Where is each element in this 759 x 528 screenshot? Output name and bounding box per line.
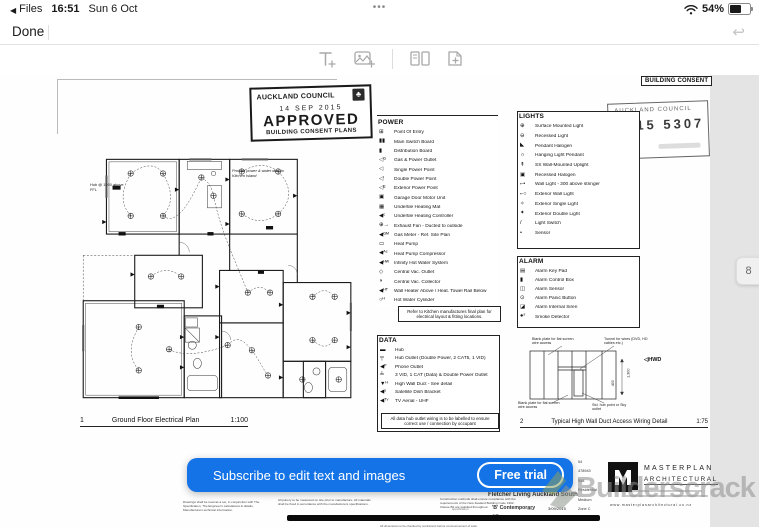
legend-item: ╤Hub Outlet (Double Power, 2 CAT5, 1 VID…: [378, 355, 499, 364]
address-line: [632, 490, 702, 492]
legend-item: ⊕→Exhaust Fan - Ducted to outside: [377, 221, 498, 230]
detail-scale: 1:75: [696, 419, 708, 425]
detail-title: Typical High Wall Duct Access Wiring Det…: [551, 419, 688, 425]
legend-item: ◀ᴴᵂInfinity Hot Water System: [377, 259, 498, 268]
nav-separator: [48, 25, 49, 40]
annotation-tunnel: Tunnel for wires (DVD, HD cables etc.): [604, 337, 656, 346]
title-block-value: Medium: [578, 499, 612, 503]
add-text-icon[interactable]: [318, 50, 337, 68]
legend-item-icon: ▣: [377, 195, 394, 201]
plan-number: 1: [80, 417, 84, 424]
legend-item-icon: ◇: [377, 270, 394, 276]
sheet-border: [57, 79, 58, 134]
legend-item: ⊙Alarm Panic Button: [518, 294, 639, 303]
legend-item-icon: ◁ᴳ: [377, 158, 394, 164]
add-page-icon[interactable]: [447, 50, 464, 68]
plan-title: Ground Floor Electrical Plan: [112, 417, 223, 424]
legend-item-icon: ▭: [377, 242, 394, 248]
legend-item: ╧3 VID, 1 CAT (Data) & Double Power Outl…: [378, 372, 499, 381]
legend-item: ◇Central Vac. Outlet: [377, 268, 498, 277]
legend-item: ◀ᴳᴹGas Meter - Ref. Site Plan: [377, 231, 498, 240]
firm-name-2: ARCHITECTURAL: [644, 476, 718, 485]
title-block-value: 558: [578, 480, 612, 484]
legend-item: ☼Hanging Light Pendant: [518, 151, 639, 161]
stamp-approved-word: APPROVED: [255, 111, 367, 129]
multitask-indicator: •••: [0, 2, 759, 13]
title-block-value: 478943: [578, 470, 612, 474]
legend-item: ✦Exterior Double Light: [518, 209, 639, 219]
legend-data-title: DATA: [379, 337, 499, 344]
legend-item-icon: ●ˢ: [518, 314, 535, 320]
spec-label: specification: [452, 507, 469, 511]
legend-item: /Light Switch: [518, 219, 639, 229]
detail-caption: 2 Typical High Wall Duct Access Wiring D…: [520, 419, 708, 428]
legend-item: ↟SS Wall-Mounted Uplight: [518, 161, 639, 171]
masterplan-logo: [608, 462, 638, 492]
legend-item-icon: ▼ᴴ: [378, 382, 395, 388]
legend-power-title: POWER: [378, 119, 498, 126]
legend-item: ▮Distribution Board: [377, 147, 498, 156]
title-block-values: 54478943558ResidentialMediumZone C: [578, 461, 612, 517]
legend-item-icon: ◁ᴱ: [377, 186, 394, 192]
legend-item-icon: ▮▮: [377, 139, 394, 145]
legend-item-icon: ◀ᶜ: [377, 214, 394, 220]
legend-item-icon: ⊙: [518, 296, 535, 302]
legend-item: ◁ʹDouble Power Point: [377, 175, 498, 184]
legend-item-icon: ◀ᴴᵂ: [377, 261, 394, 267]
battery-percent: 54%: [702, 3, 724, 15]
wifi-icon: [684, 4, 698, 15]
sheet-border: [57, 79, 337, 80]
legend-item-icon: /: [518, 221, 535, 227]
data-wiring-note: All data hub outlet wiring is to be labe…: [381, 413, 499, 429]
done-button[interactable]: Done: [12, 24, 44, 39]
subscribe-banner: Subscribe to edit text and images Free t…: [187, 458, 573, 492]
legend-item-icon: ╧: [378, 373, 395, 379]
firm-website: www.masterplanarchitectural.co.nz: [610, 503, 692, 507]
battery-icon: [728, 3, 751, 15]
legend-item-icon: ▮: [377, 149, 394, 155]
legend-item: ▣Garage Door Motor Unit: [377, 193, 498, 202]
legend-lights: LIGHTS ⊕Surface Mounted Light⊖Recessed L…: [517, 111, 640, 249]
stamp-council-name: AUCKLAND COUNCIL: [256, 92, 334, 101]
hwd-symbol: ◁HWD: [644, 357, 661, 363]
legend-item-icon: ▣: [518, 173, 535, 179]
legend-item-icon: ✦: [518, 211, 535, 217]
legend-item-icon: ╤: [378, 356, 395, 362]
title-block-value: Zone C: [578, 508, 612, 512]
legend-item: ◀ᴬᶜHeat Pump Compressor: [377, 249, 498, 258]
legend-item-icon: ⊞: [377, 130, 394, 136]
legend-item: ▼ᴴHigh Wall Duct - See detail: [378, 380, 499, 389]
legend-item: ◀ˢSatellite Dish Bracket: [378, 389, 499, 398]
status-bar: ◀ Files 16:51 Sun 6 Oct ••• 54%: [0, 0, 759, 21]
detail-number: 2: [520, 419, 523, 425]
legend-alarm: ALARM ▤Alarm Key Pad▮Alarm Control Box◫A…: [517, 256, 640, 328]
annotation-blank-plate-bottom: Blank plate for flat screen wire access: [518, 401, 562, 410]
legend-lights-title: LIGHTS: [519, 113, 639, 120]
legend-item-icon: ○ᴴ: [377, 298, 394, 304]
plan-island-note: Provide power & water duct to Kitchen Is…: [232, 169, 286, 178]
legend-item: ○ᴴHot Water Cylinder: [377, 296, 498, 305]
legend-item: ◁Single Power Point: [377, 165, 498, 174]
legend-item: ◁ᴳGas & Power Outlet: [377, 156, 498, 165]
legend-item-icon: ⌐•: [518, 182, 535, 188]
nav-bar: Done ↩: [0, 21, 759, 45]
firm-name: MASTERPLAN: [644, 465, 713, 472]
fine-print: Drawings shall be read as a set, in conj…: [183, 500, 273, 512]
legend-item: ▭Heat Pump: [377, 240, 498, 249]
undo-icon[interactable]: ↩: [732, 23, 745, 41]
legend-item: ▬Hub: [378, 346, 499, 355]
legend-item-icon: •: [518, 231, 535, 237]
legend-item-icon: ◪: [518, 305, 535, 311]
legend-item: ⊕Surface Mounted Light: [518, 122, 639, 132]
legend-item: ◀ᴴᵀWall Heater Above / Heat. Towel Rail …: [377, 287, 498, 296]
redaction-bar: [287, 515, 600, 521]
fine-print: All joinery to be measured on site prior…: [278, 498, 374, 506]
legend-item-icon: ◀ˢ: [378, 390, 395, 396]
legend-item: ▦Undertile Heating Mat: [377, 203, 498, 212]
legend-item-icon: ▤: [518, 269, 535, 275]
legend-item-icon: ⌐○: [518, 192, 535, 198]
legend-item: ⊖Recessed Light: [518, 132, 639, 142]
legend-item: ✧Exterior Single Light: [518, 200, 639, 210]
legend-item: ◑Central Vac. Collector: [377, 278, 498, 287]
legend-item: ⌐•Wall Light - 300 above stringer: [518, 180, 639, 190]
building-consent-tag: BUILDING CONSENT: [641, 76, 712, 86]
organize-pages-icon[interactable]: [410, 50, 430, 68]
legend-item-icon: ▬: [378, 348, 395, 354]
faint-stamp-text: [658, 143, 700, 149]
legend-item: •Sensor: [518, 229, 639, 239]
legend-item-icon: ☼: [518, 153, 535, 159]
page-number-badge[interactable]: 8: [736, 257, 759, 285]
legend-item: ◣Pendant Halogen: [518, 141, 639, 151]
legend-alarm-title: ALARM: [519, 258, 639, 265]
legend-item-icon: ⊕: [518, 124, 535, 130]
legend-item: ⌐○Exterior Wall Light: [518, 190, 639, 200]
legend-item-icon: ▦: [377, 205, 394, 211]
legend-item: ◁ᴱExterior Power Point: [377, 184, 498, 193]
legend-item-icon: ◁ʹ: [377, 177, 394, 183]
legend-item-icon: ▮: [518, 278, 535, 284]
annotation-blank-plate-top: Blank plate for flat screen wire access: [532, 337, 578, 346]
legend-item: ▮▮Main Switch Board: [377, 137, 498, 146]
legend-item: ⊞Point Of Entry: [377, 128, 498, 137]
markup-toolbar: [0, 45, 759, 75]
legend-item: ▣Recessed Halogen: [518, 170, 639, 180]
legend-power: POWER ⊞Point Of Entry▮▮Main Switch Board…: [377, 115, 498, 306]
legend-item: ▮Alarm Control Box: [518, 276, 639, 285]
legend-item-icon: ◁: [377, 167, 394, 173]
project-name: Fletcher Living Auckland South: [488, 492, 578, 498]
council-logo-icon: ♣: [352, 89, 364, 101]
legend-item-icon: ⊕→: [377, 223, 394, 229]
annotation-hub-point: Std. hub point or Sky outlet: [592, 403, 632, 412]
legend-item: ◀ᴾPhone Outlet: [378, 363, 499, 372]
legend-item-icon: ◫: [518, 287, 535, 293]
legend-item: ◫Alarm Sensor: [518, 285, 639, 294]
legend-item-icon: ✧: [518, 202, 535, 208]
legend-item-icon: ◀ᵀᵛ: [378, 399, 395, 405]
toolbar-divider: [392, 49, 393, 69]
legend-item: ◪Alarm Internal Siren: [518, 303, 639, 312]
plan-hub-note: Hub @ 1500 above FFL: [90, 183, 130, 192]
floor-plan-drawing: Hub @ 1500 above FFL Provide power & wat…: [60, 133, 368, 421]
address-line: [626, 495, 708, 497]
legend-item: ◀ᵀᵛTV Aerial - UHF: [378, 397, 499, 406]
dim-400: 400: [611, 380, 615, 386]
pdf-page: BUILDING CONSENT AUCKLAND COUNCIL ♣ 14 S…: [0, 75, 759, 527]
plan-caption: 1 Ground Floor Electrical Plan 1:100: [80, 417, 248, 427]
page-right-margin: [710, 75, 759, 527]
dim-1300: 1,300: [626, 369, 630, 378]
legend-item: ◀ᶜUndertile Heating Controller: [377, 212, 498, 221]
title-block-value: Residential: [578, 489, 612, 493]
hwd-detail-drawing: Blank plate for flat screen wire access …: [518, 337, 710, 421]
date-label: date: [527, 507, 533, 511]
plan-scale: 1:100: [230, 417, 248, 424]
legend-item-icon: ◀ᴴᵀ: [377, 289, 394, 295]
title-block-value: 54: [578, 461, 612, 465]
legend-item-icon: ◣: [518, 143, 535, 149]
add-image-icon[interactable]: [354, 50, 375, 68]
legend-item-icon: ◀ᴾ: [378, 365, 395, 371]
banner-message: Subscribe to edit text and images: [213, 468, 405, 483]
legend-item: ●ˢSmoke Detector: [518, 312, 639, 321]
drawing-date: 3/09/2015: [548, 506, 566, 511]
legend-item-icon: ◀ᴳᴹ: [377, 233, 394, 239]
legend-item-icon: ◑: [377, 279, 394, 285]
kitchen-note: Refer to Kitchen manufactures final plan…: [398, 306, 501, 322]
legend-item-icon: ⊖: [518, 134, 535, 140]
legend-item-icon: ↟: [518, 163, 535, 169]
legend-item: ▤Alarm Key Pad: [518, 267, 639, 276]
free-trial-button[interactable]: Free trial: [477, 462, 564, 488]
legend-item-icon: ◀ᴬᶜ: [377, 251, 394, 257]
